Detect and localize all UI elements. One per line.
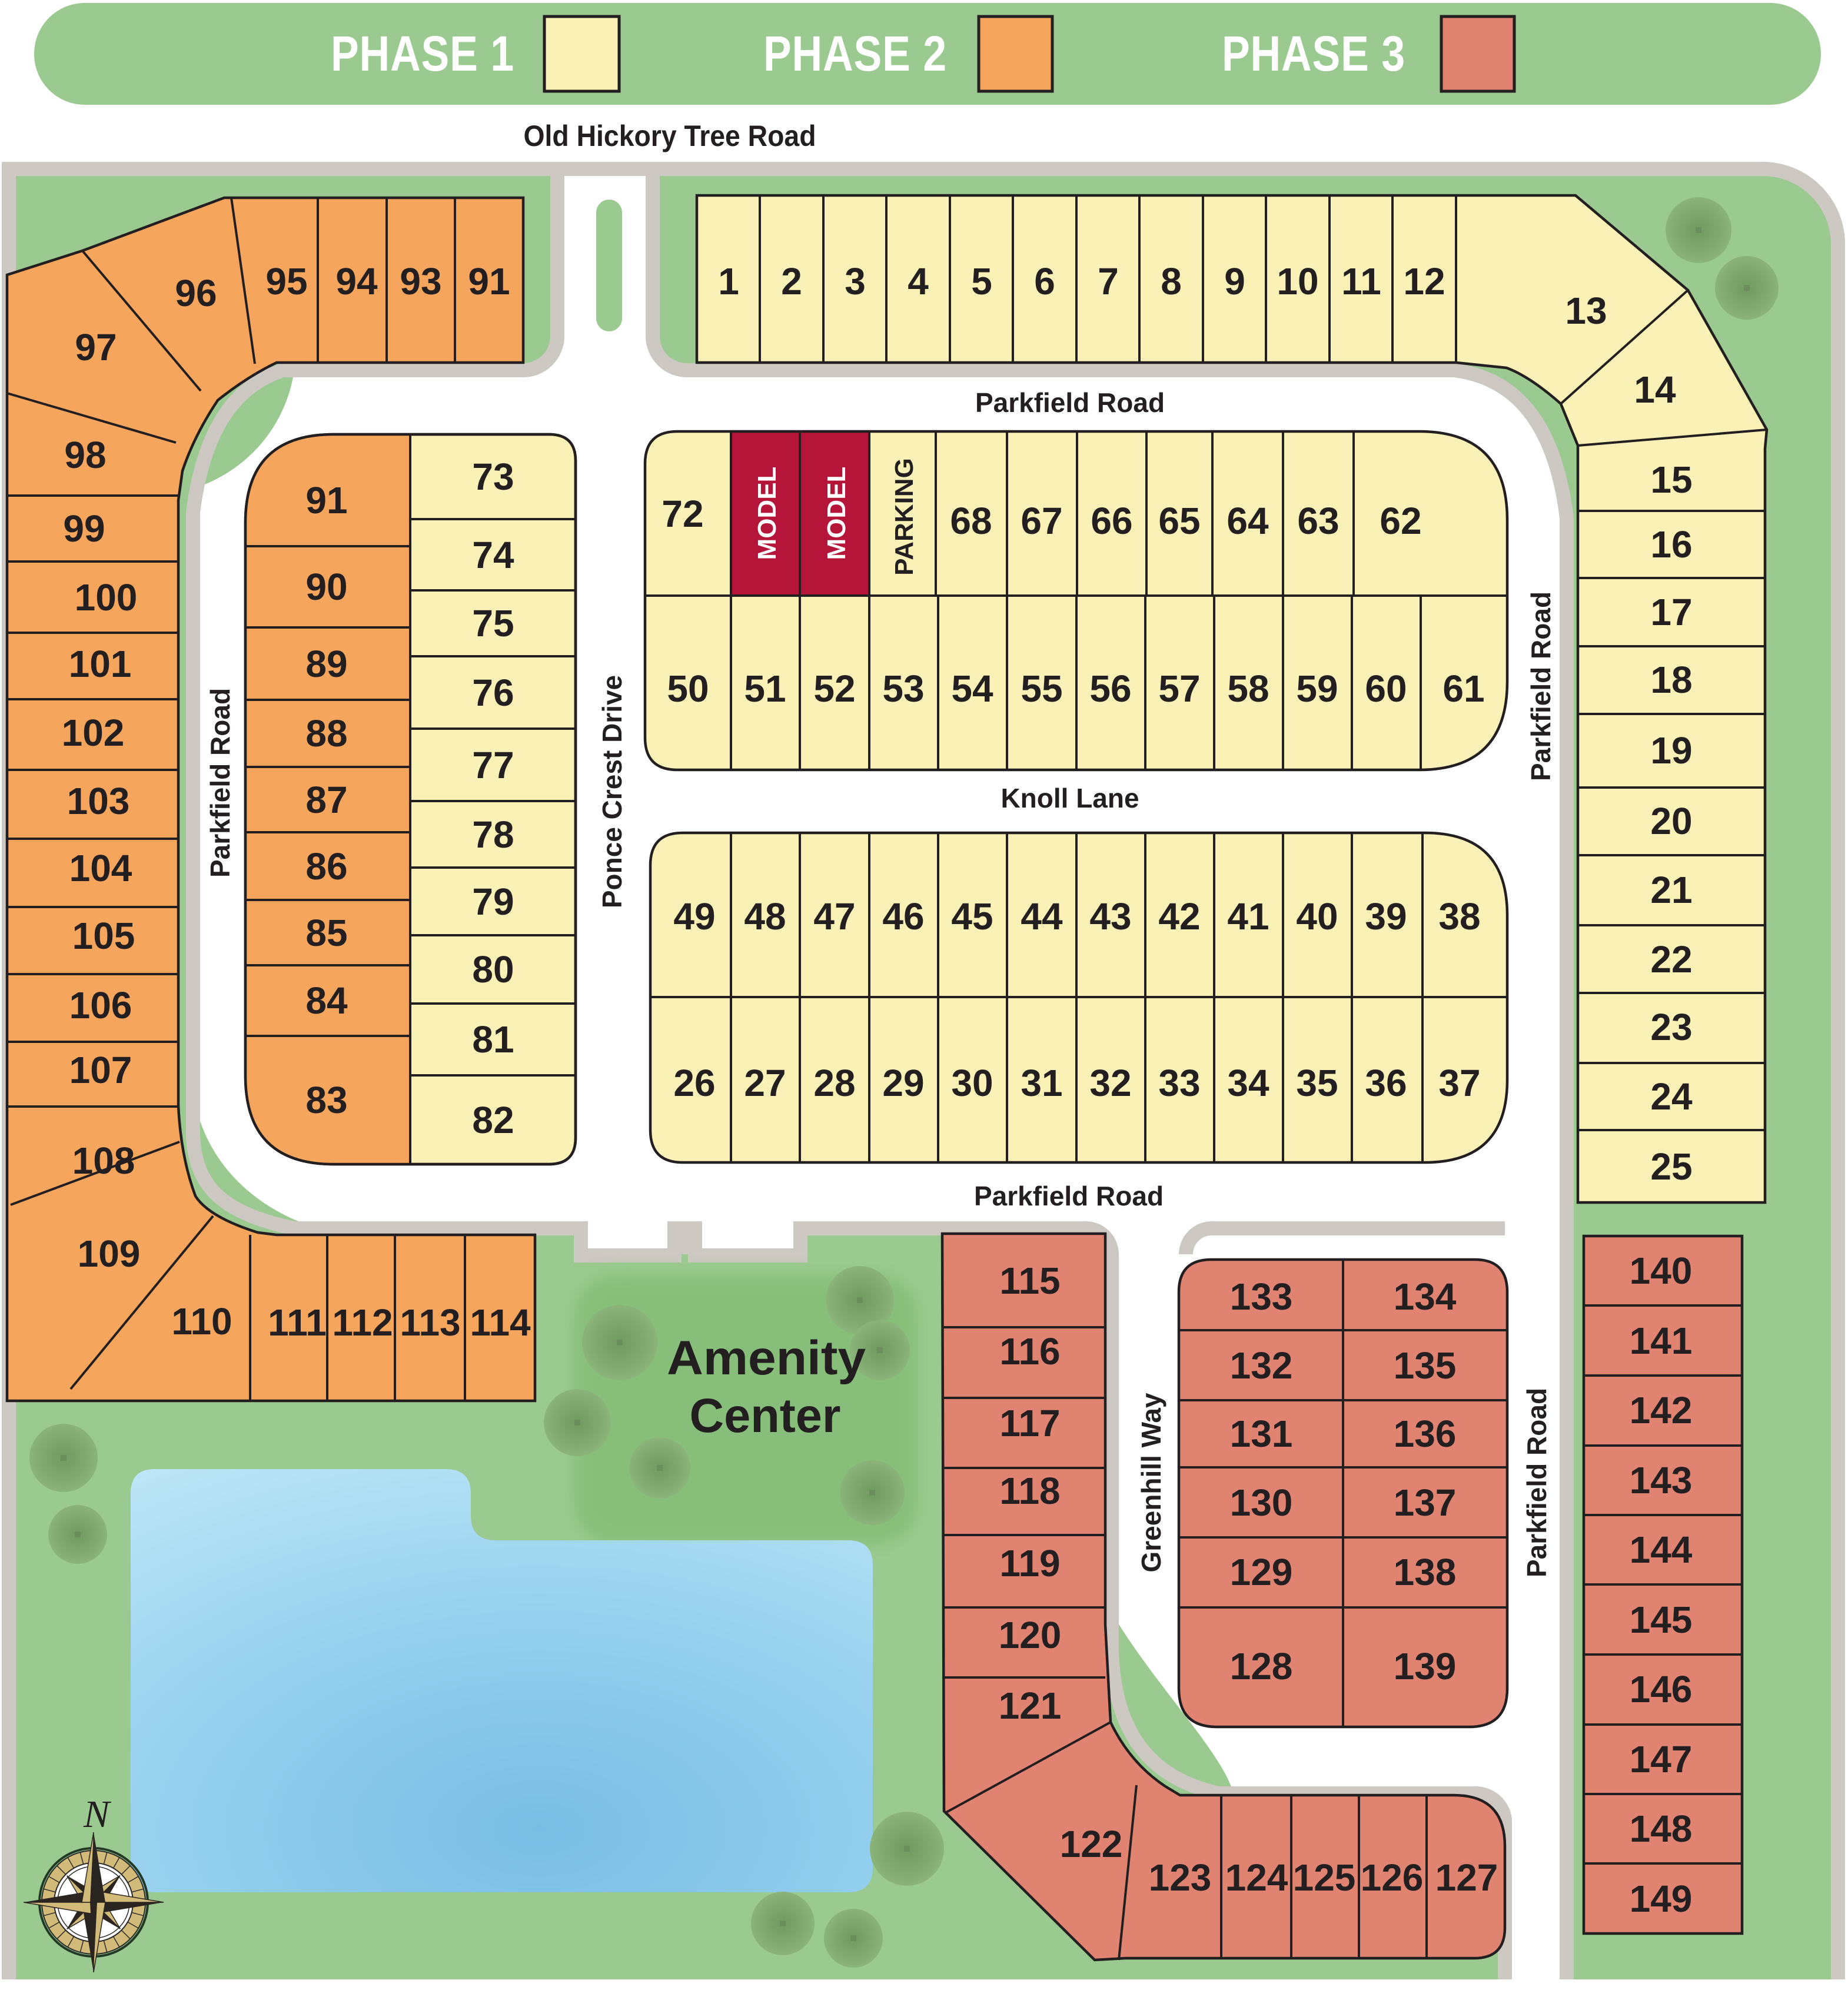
svg-text:127: 127: [1435, 1856, 1498, 1899]
svg-text:12: 12: [1403, 260, 1445, 303]
svg-text:106: 106: [69, 984, 132, 1026]
svg-text:27: 27: [744, 1062, 786, 1104]
svg-text:26: 26: [673, 1062, 715, 1104]
svg-text:132: 132: [1230, 1344, 1293, 1387]
svg-text:40: 40: [1296, 895, 1338, 938]
svg-text:91: 91: [305, 479, 347, 521]
svg-text:91: 91: [468, 260, 510, 303]
svg-text:19: 19: [1650, 729, 1692, 772]
svg-text:145: 145: [1630, 1599, 1693, 1641]
svg-text:57: 57: [1158, 667, 1200, 710]
svg-text:42: 42: [1158, 895, 1200, 938]
svg-text:20: 20: [1650, 800, 1692, 842]
svg-text:60: 60: [1365, 667, 1407, 710]
svg-text:135: 135: [1394, 1344, 1457, 1387]
svg-text:102: 102: [62, 712, 125, 754]
svg-text:47: 47: [813, 895, 855, 938]
svg-text:Parkfield Road: Parkfield Road: [205, 688, 235, 878]
svg-text:48: 48: [744, 895, 786, 938]
svg-text:147: 147: [1630, 1738, 1693, 1780]
svg-text:56: 56: [1089, 667, 1131, 710]
svg-text:16: 16: [1650, 523, 1692, 566]
svg-text:39: 39: [1365, 895, 1407, 938]
svg-text:98: 98: [64, 434, 106, 476]
svg-text:74: 74: [472, 534, 514, 576]
svg-text:2: 2: [781, 260, 802, 303]
svg-text:Ponce Crest Drive: Ponce Crest Drive: [597, 675, 627, 908]
svg-text:24: 24: [1650, 1075, 1693, 1118]
svg-text:94: 94: [335, 260, 378, 303]
svg-text:114: 114: [470, 1301, 531, 1344]
svg-text:77: 77: [472, 744, 514, 786]
svg-text:29: 29: [882, 1062, 924, 1104]
svg-text:PHASE 2: PHASE 2: [763, 26, 947, 81]
svg-text:81: 81: [472, 1018, 514, 1061]
svg-text:11: 11: [1341, 260, 1381, 303]
svg-text:99: 99: [63, 507, 105, 550]
svg-text:75: 75: [472, 602, 514, 644]
svg-text:9: 9: [1224, 260, 1245, 303]
svg-text:119: 119: [999, 1542, 1060, 1584]
svg-text:122: 122: [1060, 1823, 1123, 1865]
svg-text:65: 65: [1158, 500, 1200, 542]
svg-text:104: 104: [69, 847, 132, 889]
svg-text:PHASE 1: PHASE 1: [331, 26, 514, 81]
svg-text:31: 31: [1021, 1062, 1062, 1104]
svg-text:66: 66: [1091, 500, 1132, 542]
svg-text:30: 30: [951, 1062, 993, 1104]
svg-text:52: 52: [813, 667, 855, 710]
svg-text:78: 78: [472, 813, 514, 856]
svg-text:123: 123: [1149, 1856, 1212, 1899]
svg-text:140: 140: [1630, 1250, 1693, 1292]
svg-text:Parkfield Road: Parkfield Road: [975, 387, 1165, 418]
svg-text:93: 93: [400, 260, 441, 303]
svg-text:84: 84: [305, 979, 348, 1022]
svg-text:64: 64: [1227, 500, 1269, 542]
svg-text:3: 3: [845, 260, 866, 303]
svg-text:143: 143: [1630, 1459, 1693, 1501]
svg-text:6: 6: [1034, 260, 1055, 303]
svg-text:4: 4: [908, 260, 929, 303]
svg-text:33: 33: [1158, 1062, 1200, 1104]
svg-text:13: 13: [1565, 290, 1607, 332]
svg-text:142: 142: [1630, 1389, 1693, 1431]
svg-text:Parkfield Road: Parkfield Road: [1521, 1388, 1552, 1577]
svg-text:54: 54: [951, 667, 993, 710]
svg-text:88: 88: [305, 712, 347, 755]
svg-text:32: 32: [1089, 1062, 1131, 1104]
svg-text:113: 113: [400, 1301, 460, 1344]
svg-text:121: 121: [999, 1685, 1062, 1727]
svg-text:1: 1: [718, 260, 739, 303]
svg-text:112: 112: [332, 1301, 393, 1344]
svg-text:100: 100: [75, 576, 138, 619]
svg-text:8: 8: [1161, 260, 1182, 303]
svg-text:Old Hickory Tree Road: Old Hickory Tree Road: [524, 119, 816, 152]
svg-text:125: 125: [1293, 1856, 1356, 1899]
svg-text:34: 34: [1227, 1062, 1269, 1104]
svg-text:117: 117: [999, 1402, 1060, 1444]
svg-text:Greenhill Way: Greenhill Way: [1136, 1393, 1166, 1572]
svg-text:133: 133: [1230, 1275, 1293, 1318]
svg-text:79: 79: [472, 881, 514, 923]
svg-text:61: 61: [1442, 667, 1484, 710]
svg-text:137: 137: [1394, 1481, 1457, 1524]
svg-text:55: 55: [1021, 667, 1062, 710]
svg-text:14: 14: [1634, 368, 1676, 411]
svg-text:82: 82: [472, 1099, 514, 1141]
svg-text:111: 111: [268, 1301, 327, 1344]
svg-text:138: 138: [1394, 1551, 1457, 1593]
svg-text:73: 73: [472, 456, 514, 498]
svg-text:101: 101: [69, 643, 132, 685]
svg-text:124: 124: [1225, 1856, 1288, 1899]
svg-text:95: 95: [265, 260, 307, 303]
svg-text:18: 18: [1650, 659, 1692, 701]
svg-text:23: 23: [1650, 1006, 1692, 1048]
svg-text:28: 28: [813, 1062, 855, 1104]
svg-text:120: 120: [999, 1614, 1062, 1656]
svg-text:148: 148: [1630, 1808, 1693, 1850]
svg-text:MODEL: MODEL: [753, 467, 782, 560]
svg-text:51: 51: [744, 667, 786, 710]
svg-text:89: 89: [305, 643, 347, 685]
svg-text:128: 128: [1230, 1645, 1293, 1687]
svg-text:37: 37: [1438, 1062, 1480, 1104]
svg-text:83: 83: [305, 1079, 347, 1121]
svg-text:Center: Center: [690, 1389, 841, 1443]
svg-text:Parkfield Road: Parkfield Road: [974, 1181, 1164, 1211]
svg-text:139: 139: [1394, 1645, 1457, 1687]
svg-text:10: 10: [1277, 260, 1318, 303]
svg-text:115: 115: [999, 1260, 1060, 1302]
svg-text:149: 149: [1630, 1878, 1693, 1920]
svg-text:Parkfield Road: Parkfield Road: [1525, 592, 1556, 781]
svg-text:58: 58: [1227, 667, 1269, 710]
svg-text:MODEL: MODEL: [822, 467, 851, 560]
svg-text:80: 80: [472, 948, 514, 991]
svg-text:86: 86: [305, 845, 347, 888]
svg-text:97: 97: [75, 326, 117, 368]
svg-text:67: 67: [1021, 500, 1062, 542]
svg-text:59: 59: [1296, 667, 1338, 710]
svg-text:134: 134: [1394, 1275, 1457, 1318]
svg-text:62: 62: [1380, 500, 1421, 542]
svg-text:129: 129: [1230, 1551, 1293, 1593]
svg-text:25: 25: [1650, 1145, 1692, 1188]
svg-text:116: 116: [999, 1330, 1060, 1373]
svg-text:68: 68: [950, 500, 992, 542]
svg-text:110: 110: [171, 1300, 232, 1343]
svg-text:146: 146: [1630, 1668, 1693, 1710]
svg-text:21: 21: [1650, 869, 1692, 911]
svg-text:17: 17: [1650, 591, 1692, 633]
svg-text:63: 63: [1297, 500, 1339, 542]
svg-text:76: 76: [472, 672, 514, 714]
svg-text:136: 136: [1394, 1413, 1457, 1455]
svg-text:PHASE 3: PHASE 3: [1222, 26, 1405, 81]
svg-text:41: 41: [1227, 895, 1269, 938]
svg-text:107: 107: [69, 1049, 132, 1091]
svg-text:N: N: [83, 1793, 112, 1836]
svg-text:72: 72: [662, 493, 703, 535]
svg-text:87: 87: [305, 779, 347, 821]
svg-text:5: 5: [971, 260, 992, 303]
svg-text:44: 44: [1021, 895, 1063, 938]
svg-text:103: 103: [67, 780, 130, 822]
svg-text:53: 53: [882, 667, 924, 710]
svg-text:50: 50: [667, 667, 709, 710]
svg-text:15: 15: [1650, 459, 1692, 501]
svg-text:7: 7: [1098, 260, 1119, 303]
svg-text:144: 144: [1630, 1529, 1693, 1571]
svg-text:Amenity: Amenity: [667, 1331, 866, 1385]
svg-text:46: 46: [882, 895, 924, 938]
svg-text:36: 36: [1365, 1062, 1407, 1104]
svg-text:90: 90: [305, 566, 347, 608]
svg-text:141: 141: [1630, 1320, 1693, 1362]
svg-text:43: 43: [1089, 895, 1131, 938]
svg-text:22: 22: [1650, 938, 1692, 981]
svg-text:108: 108: [72, 1139, 135, 1182]
svg-text:45: 45: [951, 895, 993, 938]
svg-text:105: 105: [72, 915, 135, 957]
svg-text:35: 35: [1296, 1062, 1338, 1104]
svg-text:130: 130: [1230, 1481, 1293, 1524]
svg-text:PARKING: PARKING: [890, 458, 919, 576]
svg-text:131: 131: [1230, 1413, 1293, 1455]
svg-text:118: 118: [999, 1470, 1060, 1512]
svg-text:85: 85: [305, 912, 347, 954]
svg-text:96: 96: [175, 272, 217, 314]
svg-text:38: 38: [1438, 895, 1480, 938]
svg-text:126: 126: [1361, 1856, 1424, 1899]
svg-text:49: 49: [673, 895, 715, 938]
svg-text:Knoll Lane: Knoll Lane: [1001, 783, 1139, 813]
svg-text:109: 109: [78, 1232, 141, 1275]
